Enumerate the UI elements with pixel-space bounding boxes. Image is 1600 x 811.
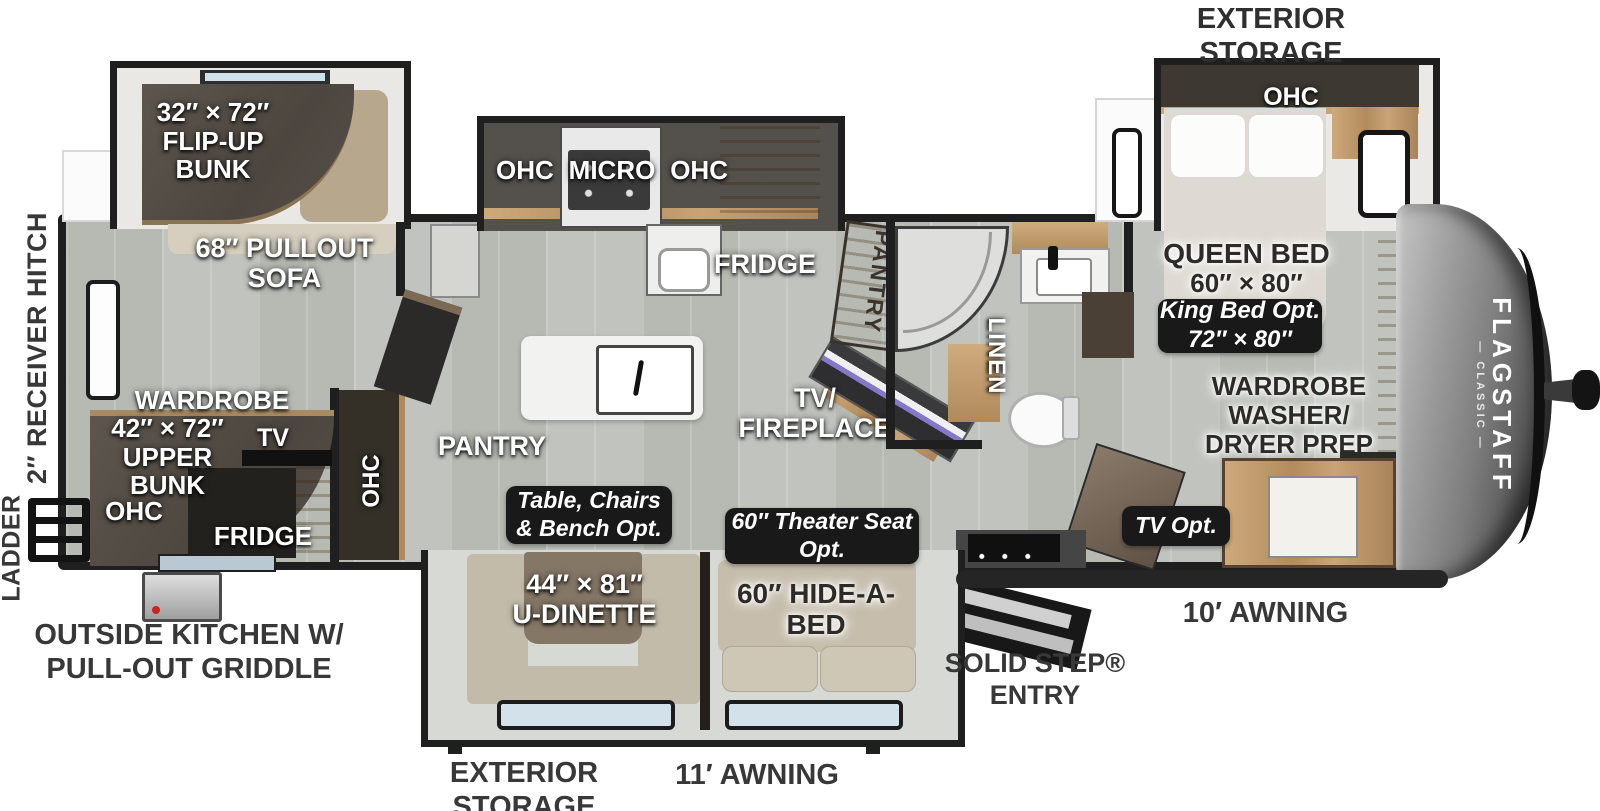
- dinette-window: [497, 700, 675, 730]
- floorplan: 2″ RECEIVER HITCH LADDER 32″ × 72″ FLIP-…: [0, 0, 1600, 811]
- hide-a-bed-seat-right: [820, 646, 916, 692]
- island-sink: [596, 345, 694, 415]
- receiver-hitch-label: 2″ RECEIVER HITCH: [23, 213, 53, 483]
- rear-fridge-label: FRIDGE: [198, 522, 328, 551]
- hitch-coupler: [1572, 370, 1600, 410]
- griddle-knob: [152, 606, 160, 614]
- ohc-right-label: OHC: [670, 156, 728, 185]
- tv-option-badge: TV Opt.: [1122, 506, 1230, 546]
- toilet-tank: [1062, 396, 1080, 440]
- pullout-sofa-label: 68″ PULLOUT SOFA: [192, 234, 377, 293]
- rear-exterior-bumpout: [62, 150, 114, 222]
- outside-kitchen-window: [158, 554, 276, 572]
- ohc-left-label: OHC: [496, 156, 554, 185]
- bunk-kitchen-wall: [396, 222, 405, 296]
- solid-step-entry-label: SOLID STEP® ENTRY: [942, 648, 1128, 712]
- hide-a-bed-seat-left: [722, 646, 818, 692]
- awning-10-label: 10′ AWNING: [1178, 596, 1353, 630]
- kitchen-sink-bowl: [658, 248, 710, 292]
- bed-pillow-right: [1248, 114, 1324, 178]
- exterior-storage-top-label: EXTERIOR STORAGE: [1190, 2, 1352, 70]
- table-chairs-option-badge: Table, Chairs & Bench Opt.: [506, 486, 672, 544]
- bath-left-wall: [886, 222, 895, 448]
- hide-a-bed-label: 60″ HIDE-A- BED: [730, 578, 902, 641]
- kitchen-fridge-label: FRIDGE: [704, 250, 826, 280]
- udinette-cushion-bottom: [467, 666, 700, 702]
- flip-up-bunk-label: 32″ × 72″ FLIP-UP BUNK: [148, 98, 278, 184]
- king-bed-option-badge: King Bed Opt. 72″ × 80″: [1158, 299, 1322, 353]
- udinette-label: 44″ × 81″ U-DINETTE: [492, 570, 677, 629]
- awning-11-label: 11′ AWNING: [668, 758, 846, 792]
- ladder-icon: [28, 498, 90, 562]
- rear-ohc-label: OHC: [98, 497, 170, 526]
- exterior-storage-bottom-label: EXTERIOR STORAGE: [438, 756, 610, 811]
- pullout-griddle: [142, 572, 222, 622]
- bunk-skylight-glass: [205, 73, 325, 81]
- bath-faucet: [1048, 246, 1058, 270]
- entry-cooktop: [968, 534, 1060, 562]
- rear-window: [86, 280, 120, 400]
- rear-bunk-size-label: 42″ × 72″ UPPER BUNK: [90, 414, 245, 500]
- hall-cabinet: [430, 224, 480, 298]
- bedroom-closet: [1082, 292, 1134, 358]
- wardrobe-washer-dryer-label: WARDROBE WASHER/ DRYER PREP: [1198, 372, 1380, 459]
- brand-name: FLAGSTAFF: [1487, 297, 1518, 495]
- rear-wardrobe-label: WARDROBE: [118, 386, 306, 415]
- micro-label: MICRO: [569, 156, 656, 185]
- brand-logo: FLAGSTAFF — CLASSIC —: [1466, 266, 1526, 526]
- tv-fireplace-label: TV/ FIREPLACE: [736, 384, 894, 443]
- ladder-label: LADDER: [0, 476, 26, 621]
- sofa-window: [725, 700, 903, 730]
- bed-pillow-left: [1170, 114, 1246, 178]
- bath-right-wall: [1124, 222, 1133, 294]
- rear-tv-label: TV: [244, 425, 302, 453]
- dinette-sofa-divider: [700, 552, 710, 730]
- dresser-drawer: [1268, 476, 1358, 558]
- bath-bottom-wall: [886, 440, 982, 449]
- outside-kitchen-label: OUTSIDE KITCHEN W/ PULL-OUT GRIDDLE: [28, 618, 350, 686]
- bath-sink: [1036, 258, 1092, 296]
- galley-ohc-vertical-label: OHC: [359, 436, 385, 526]
- theater-seat-option-badge: 60″ Theater Seat Opt.: [725, 508, 919, 564]
- brand-series: — CLASSIC —: [1475, 341, 1487, 450]
- kitchen-fridge-cabinet: [720, 126, 820, 222]
- bath-bumpout-window: [1112, 128, 1142, 218]
- front-awning-rail: [956, 570, 1448, 588]
- slide-foot-left: [448, 740, 462, 754]
- kitchen-pantry-label: PANTRY: [436, 432, 548, 462]
- slide-foot-right: [866, 740, 880, 754]
- kitchen-ohc-row: OHC MICRO OHC: [496, 156, 728, 185]
- linen-vertical-label: LINEN: [984, 302, 1008, 410]
- queen-bed-label: QUEEN BED 60″ × 80″: [1154, 238, 1339, 298]
